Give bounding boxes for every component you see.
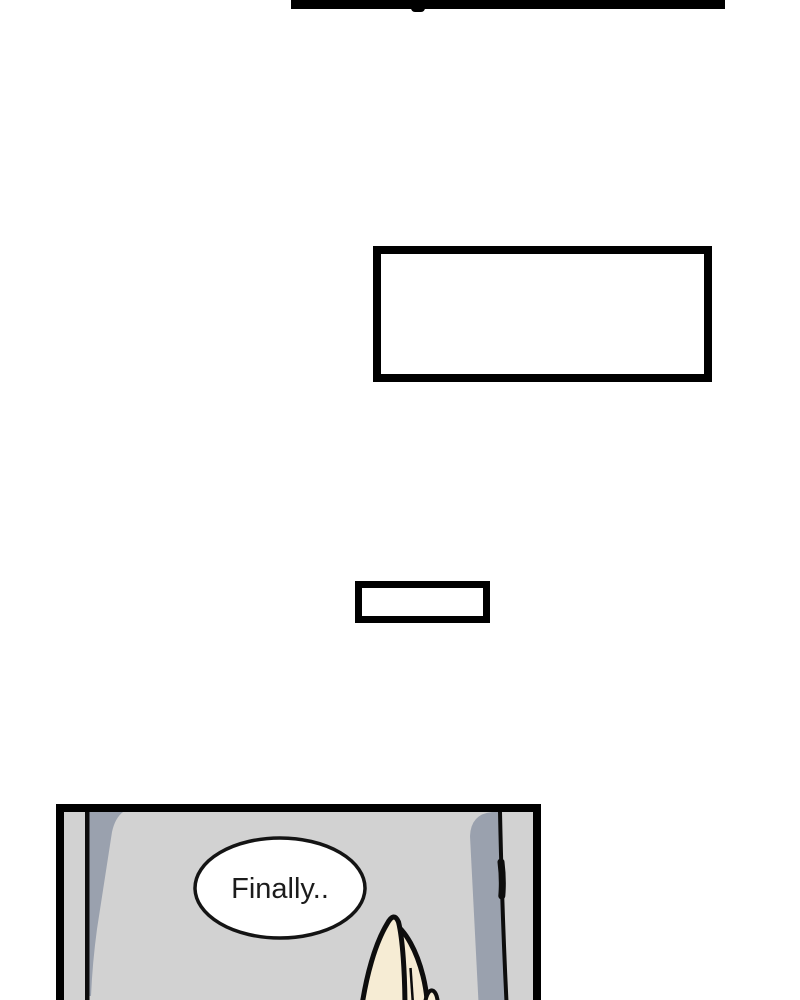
empty-panel-large <box>373 246 712 382</box>
panel-edge-notch <box>411 8 425 12</box>
right-frame-line-bulge <box>501 862 502 896</box>
left-frame-line <box>85 812 90 1000</box>
previous-panel-bottom-edge <box>291 0 725 9</box>
comic-panel: Finally.. <box>56 804 541 1000</box>
comic-panel-artwork: Finally.. <box>56 804 541 1000</box>
empty-panel-small <box>355 581 490 623</box>
comic-strip-page: Finally.. <box>0 0 800 1000</box>
speech-bubble-text: Finally.. <box>231 873 329 905</box>
